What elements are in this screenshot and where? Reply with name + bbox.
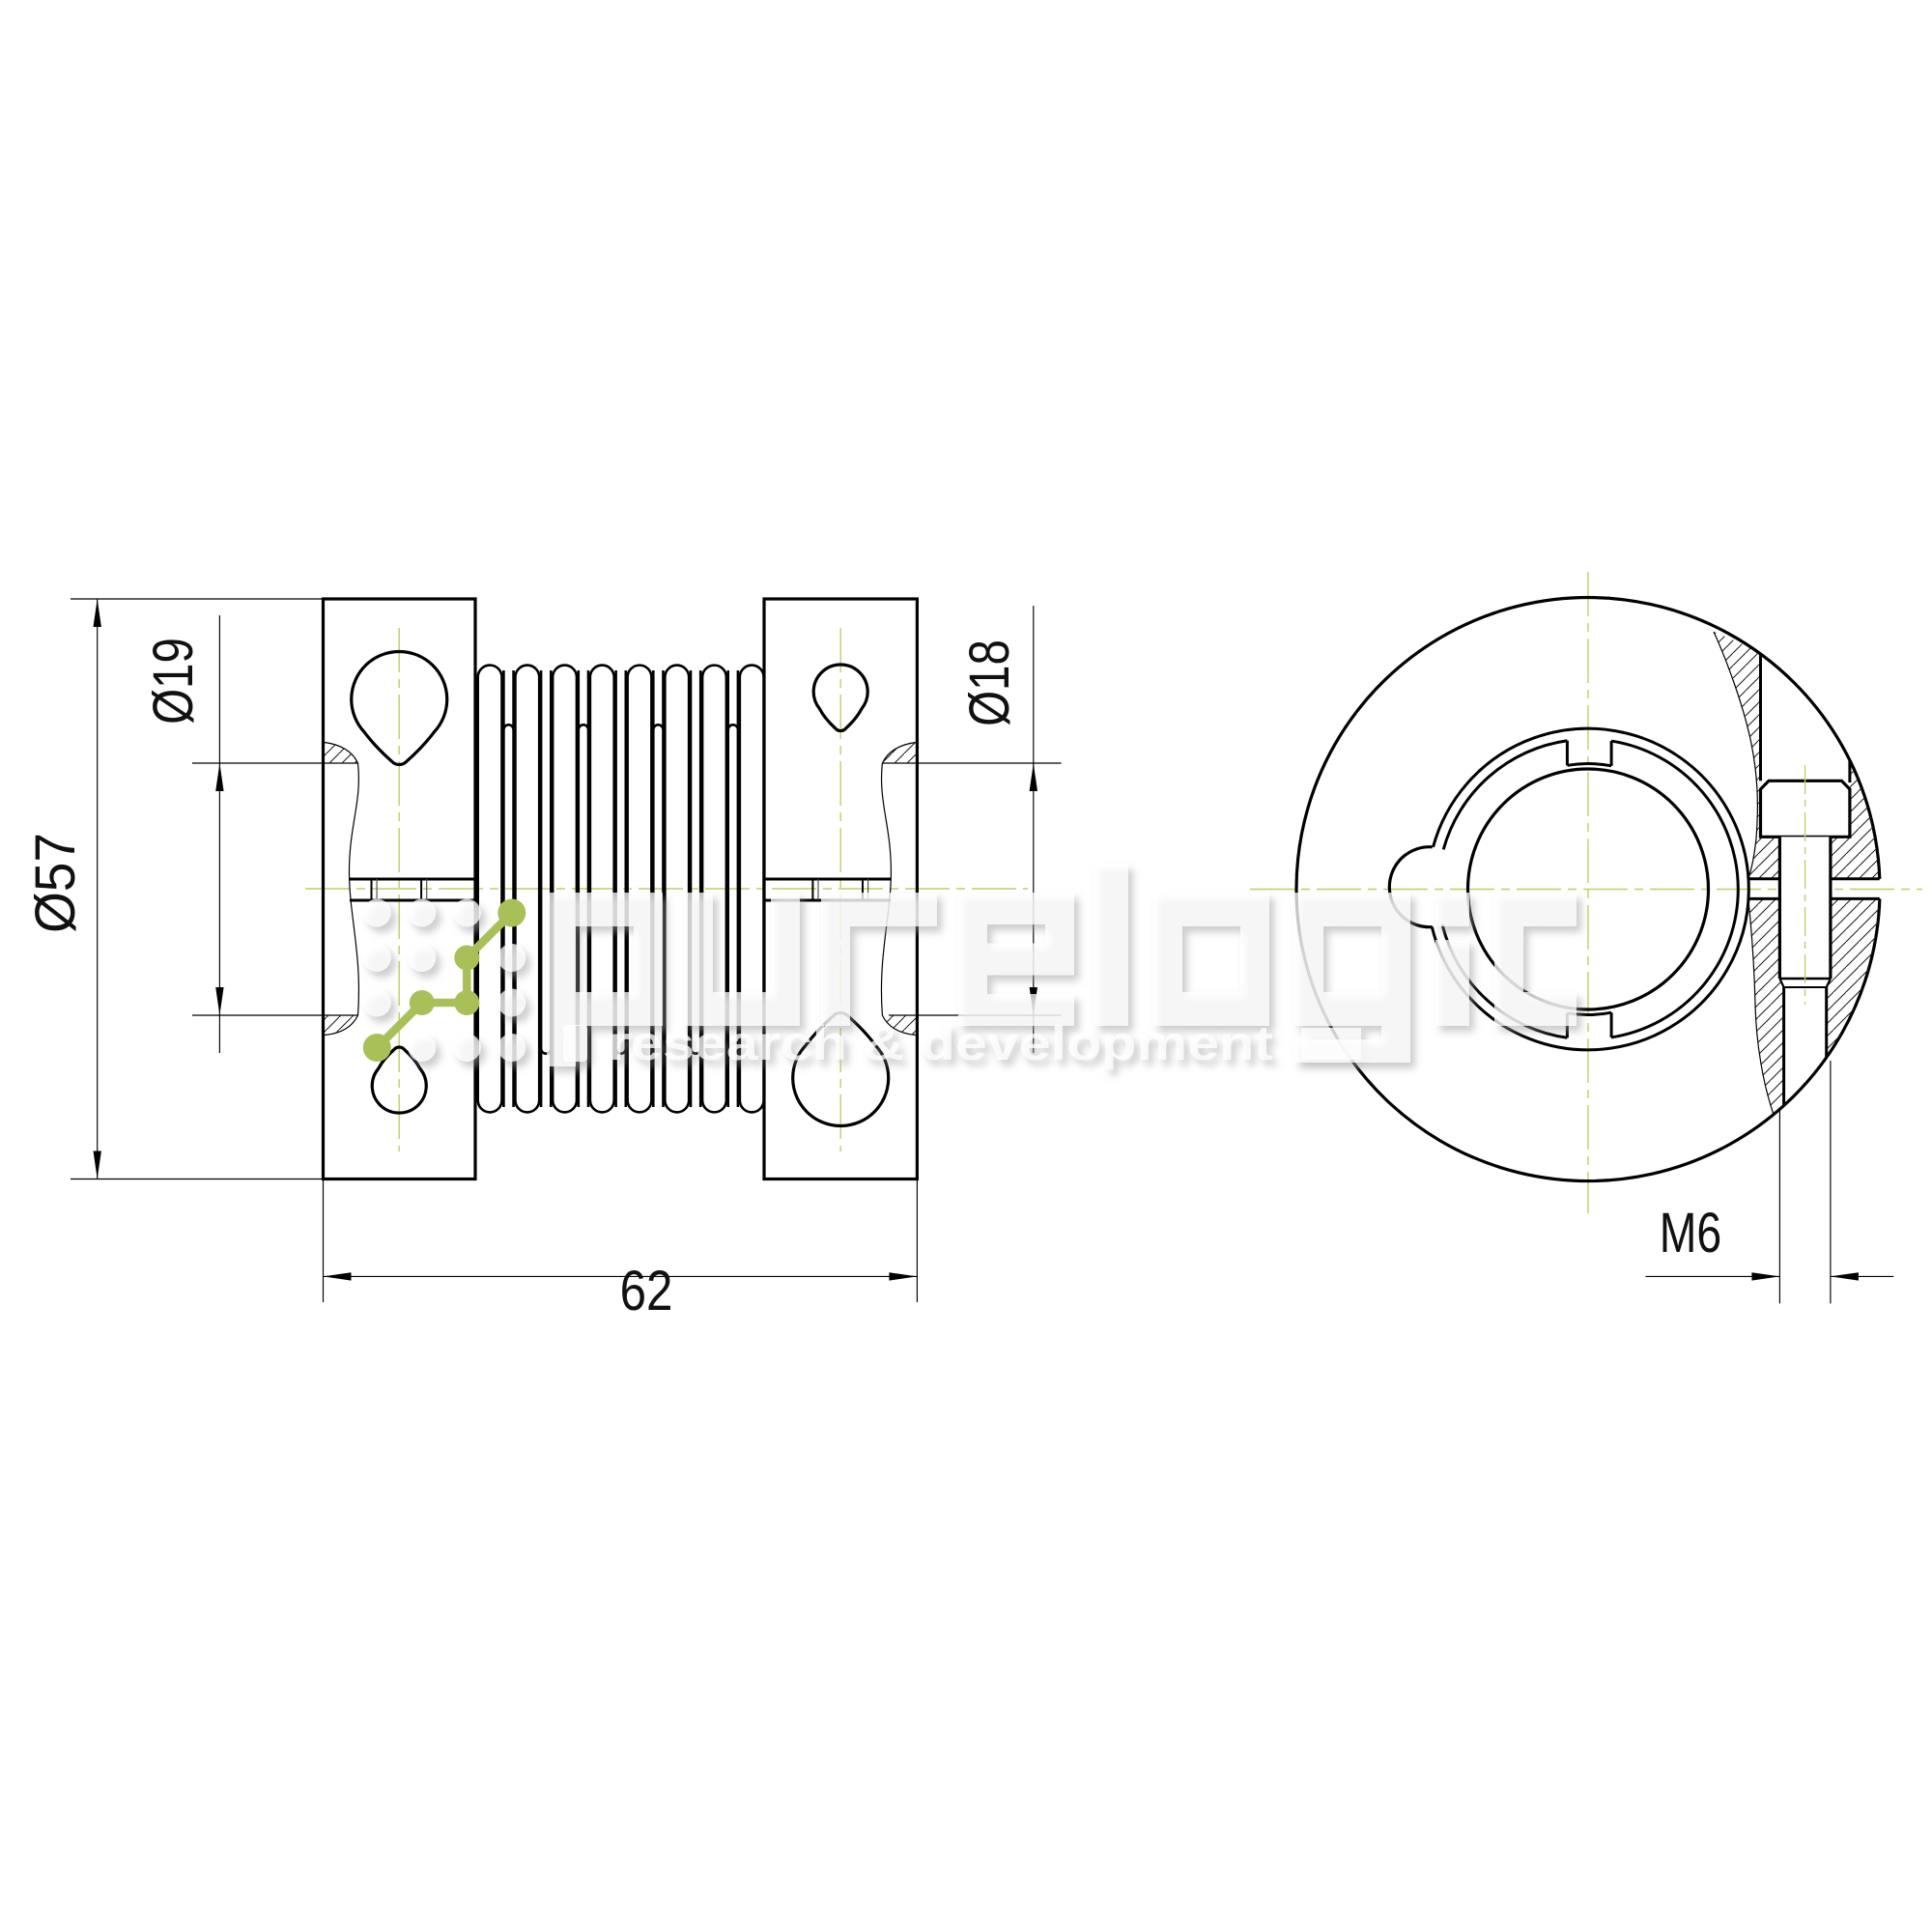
svg-text:Ø18: Ø18: [959, 639, 1022, 726]
svg-text:M6: M6: [1660, 1202, 1721, 1264]
svg-text:62: 62: [620, 1260, 673, 1322]
svg-text:research & development: research & development: [609, 1016, 1273, 1070]
svg-text:Ø57: Ø57: [24, 833, 87, 933]
svg-text:Ø19: Ø19: [143, 638, 206, 724]
